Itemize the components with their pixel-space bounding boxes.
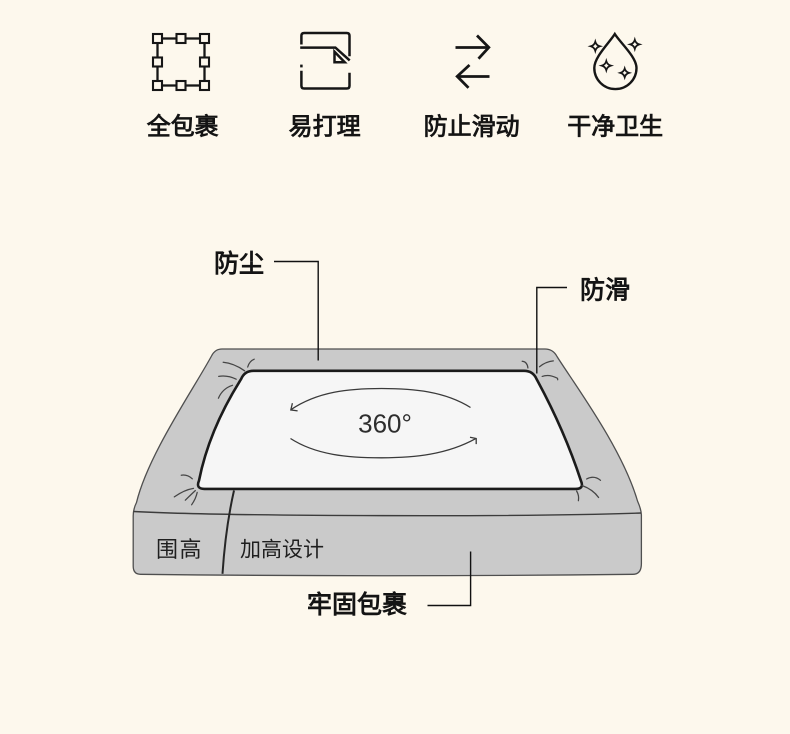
- svg-text:360°: 360°: [358, 409, 412, 439]
- svg-text:防尘: 防尘: [214, 250, 264, 278]
- svg-text:防滑: 防滑: [580, 277, 630, 305]
- svg-text:围高: 围高: [156, 537, 203, 562]
- svg-text:加高设计: 加高设计: [240, 539, 324, 562]
- svg-text:牢固包裹: 牢固包裹: [307, 590, 408, 619]
- svg-text:易打理: 易打理: [289, 113, 361, 141]
- svg-text:防止滑动: 防止滑动: [424, 113, 520, 141]
- svg-text:干净卫生: 干净卫生: [567, 113, 663, 141]
- svg-text:全包裹: 全包裹: [146, 113, 220, 141]
